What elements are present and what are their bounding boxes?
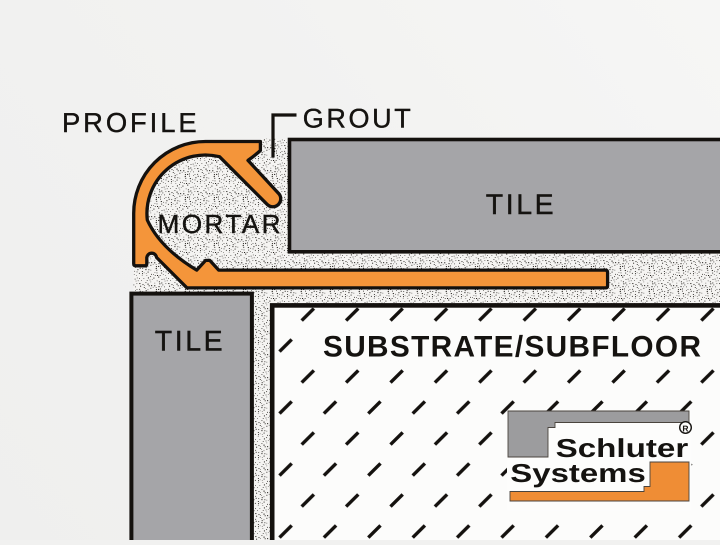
svg-text:PROFILE: PROFILE: [62, 107, 200, 138]
svg-text:TILE: TILE: [486, 189, 556, 221]
svg-text:GROUT: GROUT: [303, 104, 414, 134]
svg-text:TILE: TILE: [155, 325, 225, 357]
svg-text:MORTAR: MORTAR: [158, 209, 283, 239]
svg-text:SUBSTRATE/SUBFLOOR: SUBSTRATE/SUBFLOOR: [323, 330, 702, 363]
svg-text:Systems: Systems: [510, 458, 646, 488]
svg-text:R: R: [682, 423, 688, 433]
